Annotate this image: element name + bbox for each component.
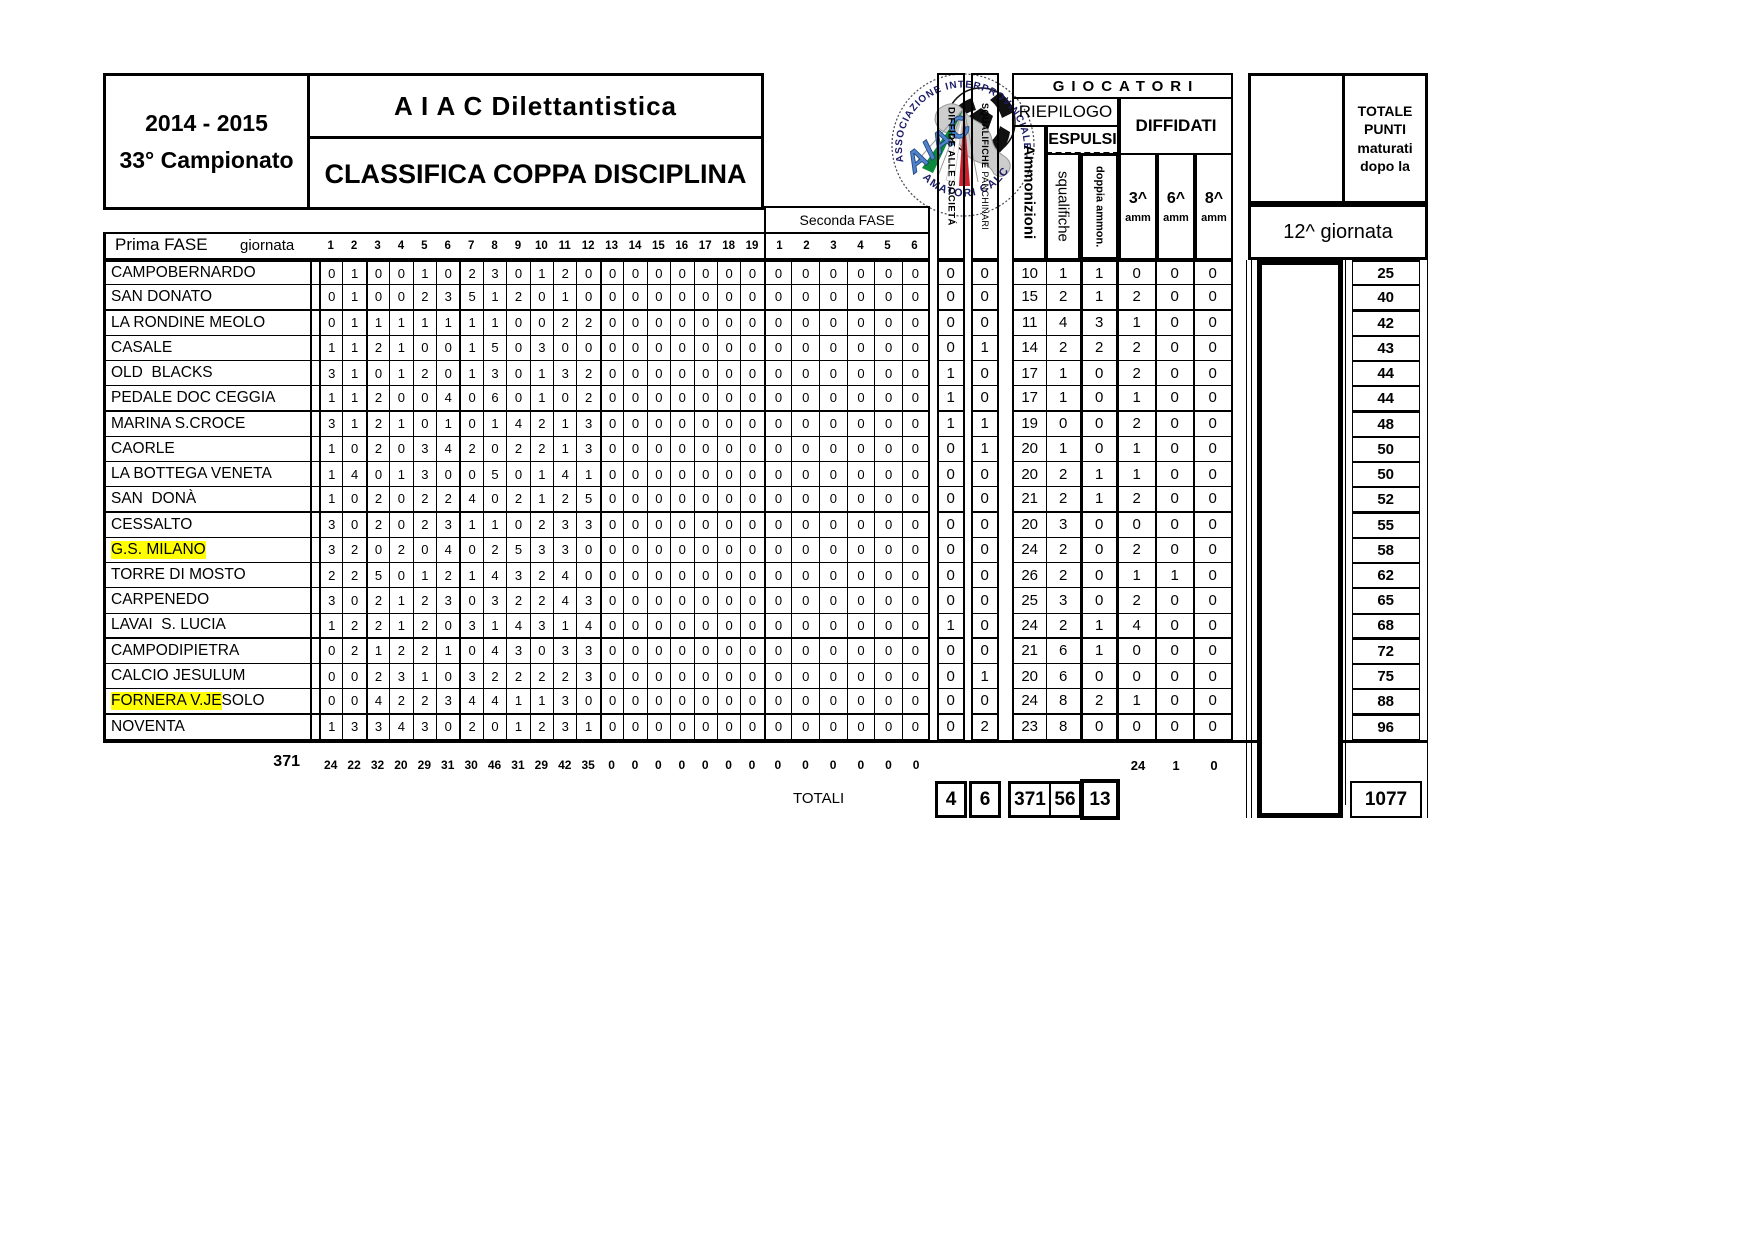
seconda-cell: 0 bbox=[902, 285, 930, 310]
prima-cell: 0 bbox=[647, 311, 670, 336]
prima-cell: 0 bbox=[717, 639, 740, 664]
totale-line4: dopo la bbox=[1360, 157, 1410, 175]
prima-cell: 3 bbox=[553, 689, 576, 714]
ammonizioni-cell: 10 bbox=[1012, 260, 1046, 285]
amm3-num: 3^ bbox=[1129, 190, 1147, 208]
prima-cell: 2 bbox=[366, 513, 389, 538]
prima-cell: 1 bbox=[389, 614, 412, 639]
prima-cell: 3 bbox=[530, 538, 553, 563]
team-name: PEDALE DOC CEGGIA bbox=[103, 386, 312, 411]
prima-cell: 0 bbox=[530, 311, 553, 336]
prima-cell: 5 bbox=[483, 462, 506, 487]
amm6-cell: 0 bbox=[1157, 260, 1195, 285]
prima-cell: 0 bbox=[576, 285, 599, 310]
seconda-cell: 0 bbox=[791, 311, 819, 336]
prima-cell: 0 bbox=[600, 462, 623, 487]
prima-cell: 6 bbox=[483, 386, 506, 411]
prima-cell: 2 bbox=[366, 437, 389, 462]
total-ammonizioni-squalifiche-box: 371 56 bbox=[1008, 781, 1082, 818]
amm3-cell: 1 bbox=[1119, 689, 1157, 714]
giornata-12-header: 12^ giornata bbox=[1248, 204, 1428, 260]
prima-cell: 0 bbox=[694, 538, 717, 563]
prima-cell: 0 bbox=[600, 336, 623, 361]
amm3-cell: 2 bbox=[1119, 285, 1157, 310]
prima-cell: 0 bbox=[647, 462, 670, 487]
amm8-cell: 0 bbox=[1195, 563, 1233, 588]
prima-sum: 22 bbox=[342, 753, 365, 777]
seconda-cell: 0 bbox=[847, 386, 875, 411]
col-header-riepilogo: RIEPILOGO bbox=[1012, 97, 1119, 127]
prima-cell: 0 bbox=[600, 285, 623, 310]
seconda-sum: 0 bbox=[819, 753, 847, 777]
prima-cell: 0 bbox=[600, 689, 623, 714]
prima-cell: 0 bbox=[600, 639, 623, 664]
squalifiche-panchinari-cell: 0 bbox=[971, 462, 999, 487]
prima-cell: 0 bbox=[717, 311, 740, 336]
prima-cell: 0 bbox=[530, 285, 553, 310]
prima-cell: 0 bbox=[576, 563, 599, 588]
prima-sum: 20 bbox=[389, 753, 412, 777]
prima-day-number: 3 bbox=[366, 232, 389, 260]
prima-cell: 0 bbox=[740, 563, 763, 588]
squalifiche-panchinari-cell: 0 bbox=[971, 614, 999, 639]
seconda-cell: 0 bbox=[819, 462, 847, 487]
prima-cell: 5 bbox=[459, 285, 482, 310]
prima-sum: 32 bbox=[366, 753, 389, 777]
prima-cell: 0 bbox=[647, 689, 670, 714]
seconda-cell: 0 bbox=[764, 386, 792, 411]
prima-cell: 0 bbox=[459, 386, 482, 411]
squalifiche-cell: 8 bbox=[1046, 715, 1080, 740]
amm8-cell: 0 bbox=[1195, 285, 1233, 310]
prima-cell: 4 bbox=[459, 487, 482, 512]
team-row: LA BOTTEGA VENETA14013005014100000000000… bbox=[103, 462, 1428, 487]
seconda-cell: 0 bbox=[764, 639, 792, 664]
squalifiche-panchinari-cell: 0 bbox=[971, 513, 999, 538]
prima-cell: 4 bbox=[436, 538, 459, 563]
prima-cell: 2 bbox=[530, 437, 553, 462]
prima-sum: 29 bbox=[530, 753, 553, 777]
col-header-totale-punti: TOTALE PUNTI maturati dopo la bbox=[1342, 73, 1428, 204]
prima-cell: 0 bbox=[413, 386, 436, 411]
prima-cell: 0 bbox=[623, 689, 646, 714]
prima-cell: 0 bbox=[623, 639, 646, 664]
prima-column-sums: 2422322029313046312942350000000 bbox=[319, 753, 764, 777]
gap bbox=[312, 386, 319, 411]
ammonizioni-cell: 26 bbox=[1012, 563, 1046, 588]
prima-cell: 0 bbox=[740, 336, 763, 361]
prima-sum: 42 bbox=[553, 753, 576, 777]
totale-punti-cell: 50 bbox=[1352, 462, 1420, 487]
prima-cell: 0 bbox=[342, 664, 365, 689]
squalifiche-cell: 1 bbox=[1046, 437, 1080, 462]
amm8-cell: 0 bbox=[1195, 361, 1233, 386]
prima-cell: 1 bbox=[413, 311, 436, 336]
seconda-cell: 0 bbox=[819, 311, 847, 336]
prima-cell: 0 bbox=[694, 336, 717, 361]
amm8-cell: 0 bbox=[1195, 311, 1233, 336]
seconda-cell: 0 bbox=[764, 538, 792, 563]
prima-cell: 0 bbox=[740, 664, 763, 689]
prima-day-number: 11 bbox=[553, 232, 576, 260]
prima-cell: 0 bbox=[647, 639, 670, 664]
doppia-ammonizione-cell: 1 bbox=[1080, 614, 1119, 639]
prima-sum: 0 bbox=[717, 753, 740, 777]
diffide-societa-cell: 0 bbox=[937, 664, 965, 689]
prima-cell: 0 bbox=[647, 285, 670, 310]
amm6-cell: 0 bbox=[1157, 412, 1195, 437]
amm3-cell: 0 bbox=[1119, 513, 1157, 538]
prima-cell: 1 bbox=[459, 563, 482, 588]
seconda-sum: 0 bbox=[764, 753, 792, 777]
prima-cell: 0 bbox=[694, 412, 717, 437]
gap bbox=[930, 513, 937, 538]
seconda-sum: 0 bbox=[875, 753, 903, 777]
prima-cell: 3 bbox=[506, 563, 529, 588]
prima-cell: 3 bbox=[436, 513, 459, 538]
seconda-cell: 0 bbox=[847, 462, 875, 487]
prima-cell: 0 bbox=[389, 260, 412, 285]
prima-cell: 0 bbox=[319, 260, 342, 285]
prima-cell: 0 bbox=[459, 588, 482, 613]
championship-label: 33° Campionato bbox=[119, 147, 293, 174]
prima-cell: 0 bbox=[740, 715, 763, 740]
amm6-cell: 0 bbox=[1157, 538, 1195, 563]
prima-cell: 2 bbox=[413, 361, 436, 386]
seconda-cell: 0 bbox=[902, 386, 930, 411]
totale-punti-cell: 43 bbox=[1352, 336, 1420, 361]
prima-cell: 0 bbox=[600, 513, 623, 538]
amm6-cell: 0 bbox=[1157, 639, 1195, 664]
prima-sum: 35 bbox=[576, 753, 599, 777]
prima-day-number: 8 bbox=[483, 232, 506, 260]
amm8-cell: 0 bbox=[1195, 664, 1233, 689]
prima-cell: 1 bbox=[413, 260, 436, 285]
prima-cell: 3 bbox=[436, 588, 459, 613]
seconda-cell: 0 bbox=[791, 361, 819, 386]
prima-cell: 2 bbox=[436, 563, 459, 588]
seconda-cell: 0 bbox=[874, 689, 902, 714]
giornata-label: giornata bbox=[240, 237, 294, 254]
prima-cell: 3 bbox=[553, 513, 576, 538]
prima-cell: 2 bbox=[366, 487, 389, 512]
seconda-cell: 0 bbox=[791, 513, 819, 538]
team-name: G.S. MILANO bbox=[103, 538, 312, 563]
seconda-fase-label: Seconda FASE bbox=[764, 206, 930, 232]
seconda-cell: 0 bbox=[791, 538, 819, 563]
amm3-cell: 0 bbox=[1119, 260, 1157, 285]
prima-cell: 4 bbox=[342, 462, 365, 487]
seconda-cell: 0 bbox=[819, 386, 847, 411]
diffide-societa-cell: 0 bbox=[937, 260, 965, 285]
prima-cell: 0 bbox=[740, 689, 763, 714]
gap bbox=[930, 260, 937, 285]
gap bbox=[930, 386, 937, 411]
amm6-cell: 0 bbox=[1157, 487, 1195, 512]
prima-cell: 0 bbox=[670, 437, 693, 462]
seconda-cell: 0 bbox=[902, 437, 930, 462]
prima-cell: 1 bbox=[483, 513, 506, 538]
prima-cell: 0 bbox=[530, 639, 553, 664]
prima-cell: 1 bbox=[553, 412, 576, 437]
gap bbox=[312, 614, 319, 639]
prima-cell: 1 bbox=[319, 614, 342, 639]
prima-cell: 0 bbox=[670, 462, 693, 487]
gap bbox=[930, 437, 937, 462]
gap bbox=[999, 285, 1012, 310]
team-name: CESSALTO bbox=[103, 513, 312, 538]
totale-punti-cell: 96 bbox=[1352, 715, 1420, 740]
col-header-squalifiche-panchinari: SQUALIFICHE PANCHINARI bbox=[971, 73, 999, 260]
prima-cell: 0 bbox=[459, 412, 482, 437]
seconda-cell: 0 bbox=[764, 437, 792, 462]
gap bbox=[999, 336, 1012, 361]
prima-cell: 0 bbox=[740, 487, 763, 512]
doppia-ammonizione-cell: 2 bbox=[1080, 336, 1119, 361]
amm3-cell: 1 bbox=[1119, 563, 1157, 588]
squalifiche-cell: 2 bbox=[1046, 563, 1080, 588]
squalifiche-word: SQUALIFICHE bbox=[980, 103, 990, 171]
prima-cell: 0 bbox=[647, 437, 670, 462]
sheet: { "meta": { "season": "2014 - 2015", "ch… bbox=[0, 0, 1754, 1240]
prima-cell: 0 bbox=[600, 664, 623, 689]
prima-cell: 0 bbox=[623, 588, 646, 613]
prima-cell: 0 bbox=[459, 462, 482, 487]
prima-cell: 3 bbox=[319, 361, 342, 386]
seconda-cell: 0 bbox=[791, 614, 819, 639]
prima-cell: 0 bbox=[717, 689, 740, 714]
seconda-cell: 0 bbox=[874, 285, 902, 310]
squalifiche-cell: 3 bbox=[1046, 588, 1080, 613]
seconda-day-number: 3 bbox=[820, 234, 847, 258]
prima-cell: 0 bbox=[670, 689, 693, 714]
team-row: CALCIO JESULUM00231032222300000000000000… bbox=[103, 664, 1428, 689]
prima-cell: 0 bbox=[717, 386, 740, 411]
seconda-cell: 0 bbox=[874, 487, 902, 512]
prima-cell: 3 bbox=[436, 285, 459, 310]
gap bbox=[999, 361, 1012, 386]
col-header-espulsi: ESPULSI bbox=[1046, 125, 1119, 155]
prima-cell: 0 bbox=[600, 563, 623, 588]
prima-day-number: 18 bbox=[717, 232, 740, 260]
diffidati-sum: 24 bbox=[1119, 753, 1157, 777]
gap bbox=[930, 538, 937, 563]
gap bbox=[312, 437, 319, 462]
prima-cell: 2 bbox=[342, 614, 365, 639]
doppia-ammonizione-cell: 1 bbox=[1080, 260, 1119, 285]
seconda-cell: 0 bbox=[847, 538, 875, 563]
prima-cell: 2 bbox=[319, 563, 342, 588]
seconda-cell: 0 bbox=[902, 462, 930, 487]
prima-cell: 1 bbox=[342, 311, 365, 336]
gap bbox=[930, 563, 937, 588]
gap bbox=[999, 311, 1012, 336]
prima-cell: 0 bbox=[694, 614, 717, 639]
prima-cell: 0 bbox=[647, 715, 670, 740]
prima-cell: 3 bbox=[553, 715, 576, 740]
squalifiche-cell: 0 bbox=[1046, 412, 1080, 437]
prima-cell: 0 bbox=[413, 412, 436, 437]
prima-cell: 0 bbox=[389, 386, 412, 411]
prima-cell: 0 bbox=[717, 538, 740, 563]
ammonizioni-cell: 24 bbox=[1012, 538, 1046, 563]
prima-cell: 2 bbox=[389, 689, 412, 714]
prima-cell: 3 bbox=[553, 639, 576, 664]
prima-cell: 0 bbox=[506, 260, 529, 285]
prima-cell: 0 bbox=[600, 361, 623, 386]
totali-label: TOTALI bbox=[793, 790, 844, 807]
prima-cell: 3 bbox=[483, 588, 506, 613]
gap bbox=[930, 285, 937, 310]
seconda-cell: 0 bbox=[902, 588, 930, 613]
seconda-cell: 0 bbox=[764, 361, 792, 386]
diffidati-sum: 0 bbox=[1195, 753, 1233, 777]
team-row: CAORLE1020342022130000000000000012010100… bbox=[103, 437, 1428, 462]
doppia-ammonizione-cell: 0 bbox=[1080, 361, 1119, 386]
prima-cell: 4 bbox=[436, 437, 459, 462]
amm8-cell: 0 bbox=[1195, 538, 1233, 563]
seconda-cell: 0 bbox=[847, 689, 875, 714]
prima-cell: 0 bbox=[717, 412, 740, 437]
prima-cell: 0 bbox=[342, 437, 365, 462]
prima-cell: 0 bbox=[670, 513, 693, 538]
prima-cell: 0 bbox=[694, 285, 717, 310]
doppia-ammonizione-cell: 1 bbox=[1080, 285, 1119, 310]
amm3-cell: 2 bbox=[1119, 487, 1157, 512]
prima-cell: 0 bbox=[647, 614, 670, 639]
prima-sum: 46 bbox=[483, 753, 506, 777]
prima-cell: 0 bbox=[623, 260, 646, 285]
amm8-label: amm bbox=[1201, 212, 1227, 224]
prima-cell: 0 bbox=[319, 285, 342, 310]
grid-line bbox=[1427, 204, 1428, 818]
ammonizioni-cell: 25 bbox=[1012, 588, 1046, 613]
gap bbox=[999, 513, 1012, 538]
prima-cell: 2 bbox=[413, 689, 436, 714]
totale-punti-cell: 58 bbox=[1352, 538, 1420, 563]
prima-cell: 2 bbox=[342, 639, 365, 664]
gap bbox=[999, 538, 1012, 563]
seconda-cell: 0 bbox=[791, 260, 819, 285]
gap bbox=[312, 588, 319, 613]
grid-line bbox=[1251, 260, 1252, 818]
prima-cell: 0 bbox=[623, 664, 646, 689]
seconda-cell: 0 bbox=[819, 437, 847, 462]
team-row: CAMPODIPIETRA021221043033000000000000000… bbox=[103, 639, 1428, 664]
squalifiche-panchinari-cell: 1 bbox=[971, 412, 999, 437]
prima-cell: 0 bbox=[506, 513, 529, 538]
seconda-cell: 0 bbox=[764, 487, 792, 512]
team-name: CARPENEDO bbox=[103, 588, 312, 613]
seconda-cell: 0 bbox=[847, 437, 875, 462]
prima-cell: 0 bbox=[647, 361, 670, 386]
team-name: SAN DONATO bbox=[103, 285, 312, 310]
prima-cell: 0 bbox=[717, 563, 740, 588]
prima-cell: 3 bbox=[576, 639, 599, 664]
prima-cell: 0 bbox=[623, 336, 646, 361]
amm8-cell: 0 bbox=[1195, 614, 1233, 639]
amm6-cell: 0 bbox=[1157, 336, 1195, 361]
prima-cell: 1 bbox=[436, 311, 459, 336]
amm8-cell: 0 bbox=[1195, 513, 1233, 538]
prima-cell: 2 bbox=[576, 386, 599, 411]
squalifiche-panchinari-cell: 0 bbox=[971, 538, 999, 563]
grid-line bbox=[1345, 260, 1346, 805]
grid-line bbox=[1246, 260, 1247, 818]
team-name: MARINA S.CROCE bbox=[103, 412, 312, 437]
team-row: PEDALE DOC CEGGIA11200406010200000000000… bbox=[103, 386, 1428, 411]
amm6-cell: 0 bbox=[1157, 588, 1195, 613]
seconda-cell: 0 bbox=[791, 487, 819, 512]
prima-cell: 0 bbox=[600, 715, 623, 740]
seconda-cell: 0 bbox=[874, 588, 902, 613]
prima-cell: 0 bbox=[342, 513, 365, 538]
ammonizioni-cell: 24 bbox=[1012, 614, 1046, 639]
team-name: LA BOTTEGA VENETA bbox=[103, 462, 312, 487]
prima-cell: 2 bbox=[389, 538, 412, 563]
diffidati-sum: 1 bbox=[1157, 753, 1195, 777]
amm6-cell: 0 bbox=[1157, 361, 1195, 386]
prima-cell: 0 bbox=[740, 412, 763, 437]
prima-cell: 5 bbox=[576, 487, 599, 512]
seconda-cell: 0 bbox=[847, 336, 875, 361]
prima-cell: 0 bbox=[694, 664, 717, 689]
prima-cell: 4 bbox=[553, 588, 576, 613]
prima-cell: 0 bbox=[694, 361, 717, 386]
standings-table: CAMPOBERNARDO010010230120000000000000000… bbox=[103, 260, 1428, 740]
gap bbox=[999, 386, 1012, 411]
prima-cell: 0 bbox=[623, 437, 646, 462]
prima-cell: 0 bbox=[717, 361, 740, 386]
squalifiche-cell: 4 bbox=[1046, 311, 1080, 336]
total-squalifiche: 56 bbox=[1049, 784, 1079, 815]
seconda-cell: 0 bbox=[902, 664, 930, 689]
highlight: G.S. MILANO bbox=[111, 541, 206, 559]
prima-cell: 0 bbox=[459, 538, 482, 563]
prima-cell: 0 bbox=[576, 336, 599, 361]
prima-cell: 0 bbox=[670, 260, 693, 285]
totale-punti-cell: 48 bbox=[1352, 412, 1420, 437]
seconda-cell: 0 bbox=[847, 664, 875, 689]
ammonizioni-grand-sum: 371 bbox=[230, 753, 300, 771]
seconda-cell: 0 bbox=[874, 538, 902, 563]
squalifiche-cell: 1 bbox=[1046, 386, 1080, 411]
gap bbox=[930, 715, 937, 740]
prima-cell: 0 bbox=[623, 285, 646, 310]
prima-cell: 0 bbox=[647, 386, 670, 411]
doppia-ammonizione-cell: 0 bbox=[1080, 715, 1119, 740]
prima-cell: 2 bbox=[413, 614, 436, 639]
prima-cell: 1 bbox=[319, 336, 342, 361]
doppia-ammonizione-cell: 0 bbox=[1080, 437, 1119, 462]
gap bbox=[930, 462, 937, 487]
gap bbox=[312, 689, 319, 714]
seconda-cell: 0 bbox=[874, 260, 902, 285]
prima-cell: 0 bbox=[623, 538, 646, 563]
amm8-cell: 0 bbox=[1195, 336, 1233, 361]
prima-cell: 0 bbox=[694, 513, 717, 538]
col-header-doppia-ammonizione: doppia ammon. bbox=[1080, 153, 1119, 260]
prima-cell: 0 bbox=[389, 513, 412, 538]
prima-cell: 0 bbox=[389, 437, 412, 462]
squalifiche-cell: 2 bbox=[1046, 462, 1080, 487]
prima-sum: 0 bbox=[670, 753, 693, 777]
squalifiche-cell: 2 bbox=[1046, 487, 1080, 512]
seconda-cell: 0 bbox=[791, 336, 819, 361]
amm6-cell: 0 bbox=[1157, 311, 1195, 336]
prima-cell: 1 bbox=[459, 513, 482, 538]
amm8-cell: 0 bbox=[1195, 639, 1233, 664]
